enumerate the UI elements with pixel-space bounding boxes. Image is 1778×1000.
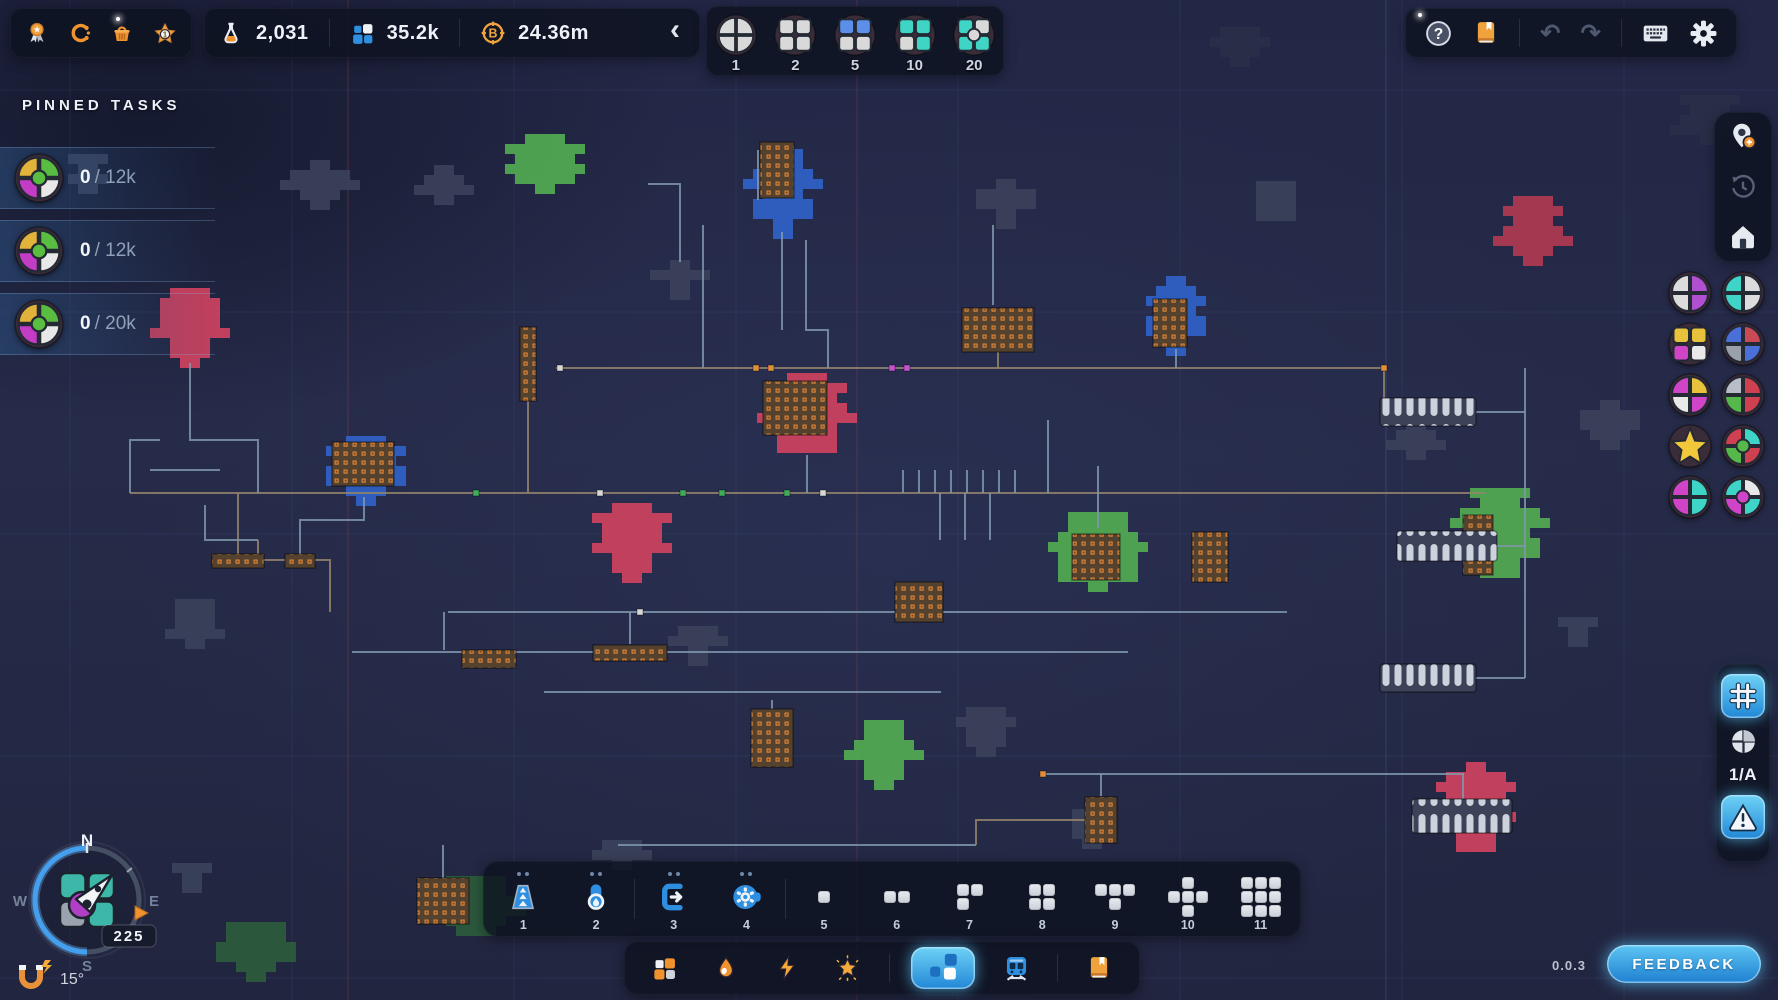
task-shape-icon [14, 299, 64, 349]
operator-shape-badge[interactable] [1668, 322, 1712, 366]
compass-tilt-value: 15° [60, 971, 84, 988]
toolbar-slot-7[interactable]: 7 [935, 867, 1004, 932]
task-progress: 0/ 12k [80, 240, 136, 262]
task-shape-icon [14, 226, 64, 276]
throughput-option-1[interactable]: 1 [710, 14, 762, 74]
add-waypoint-button[interactable] [1728, 122, 1758, 152]
toolbar-hotkey: 4 [743, 918, 750, 932]
shape-layout-icon [818, 879, 830, 915]
divider [1519, 19, 1520, 47]
shortcuts-button[interactable] [1642, 20, 1669, 47]
linked-shapes-button[interactable] [68, 21, 92, 45]
magnet-snap-icon[interactable] [19, 960, 52, 986]
toolbar-hotkey: 3 [670, 918, 677, 932]
pipe-icon [578, 879, 614, 915]
feedback-button[interactable]: FEEDBACK [1607, 945, 1761, 983]
toolbar-hotkey: 11 [1254, 918, 1267, 932]
main-menu-panel: ★ 1 [10, 8, 192, 58]
chain-icon [68, 20, 92, 46]
operator-shape-badge[interactable] [1721, 271, 1765, 315]
throughput-selector-panel: 1 2 5 [706, 6, 1004, 76]
toolbar-hotkey: 1 [520, 918, 527, 932]
question-icon: ? [1425, 20, 1452, 47]
research-flask-icon [218, 20, 244, 46]
pinned-task-row[interactable]: 0/ 12k [0, 220, 215, 282]
flame-icon [713, 955, 739, 981]
history-clock-icon [1729, 173, 1757, 201]
toolbar-hotkey: 9 [1112, 918, 1119, 932]
task-progress: 0/ 12k [80, 167, 136, 189]
task-progress: 0/ 20k [80, 313, 136, 335]
settings-button[interactable] [1690, 20, 1717, 47]
toolbar-slot-2[interactable]: 2 [562, 867, 631, 932]
achievements-button[interactable]: ★ [25, 21, 49, 45]
redo-button[interactable]: ↷ [1581, 19, 1601, 48]
coin-icon: B [480, 20, 506, 46]
grid-view-button[interactable] [1721, 674, 1765, 718]
shape-layout-icon [1095, 879, 1135, 915]
toolbar-hotkey: 2 [593, 918, 600, 932]
resources-panel: 2,031 35.2k B 24.36m ‹ [204, 8, 700, 58]
throughput-label: 5 [851, 57, 859, 74]
throughput-option-2[interactable]: 2 [769, 14, 821, 74]
compass[interactable]: N W E S 225 15° [8, 826, 183, 998]
category-tab-bar [624, 941, 1140, 995]
shape-badge-icon [715, 14, 757, 56]
pinned-task-row[interactable]: 0/ 12k [0, 147, 215, 209]
toolbar-hotkey: 6 [893, 918, 900, 932]
medal-icon: ★ [25, 20, 49, 46]
alerts-button[interactable] [1721, 795, 1765, 839]
help-button[interactable]: ? [1425, 20, 1452, 47]
shape-layout-icon [884, 879, 910, 915]
toolbar-hotkey: 10 [1181, 918, 1195, 932]
world-map[interactable] [0, 0, 1778, 1000]
toolbar-slot-4[interactable]: 4 [712, 867, 781, 932]
sparkle-dot [1418, 13, 1422, 17]
throughput-option-20[interactable]: 20 [948, 14, 1000, 74]
shape-layout-icon [957, 879, 983, 915]
compass-heading-value: 225 [113, 928, 144, 945]
history-button[interactable] [1729, 173, 1757, 201]
operator-shape-badge[interactable] [1668, 373, 1712, 417]
throughput-label: 2 [791, 57, 799, 74]
compass-west: W [13, 893, 28, 910]
toolbar-slot-3[interactable]: 3 [639, 867, 708, 932]
shape-badge-icon [894, 14, 936, 56]
operator-shape-badge[interactable] [1668, 424, 1712, 468]
divider [785, 879, 786, 919]
processor-icon [728, 879, 764, 915]
lightning-icon [774, 955, 800, 981]
divider [889, 954, 890, 982]
operator-shape-badge[interactable] [1721, 373, 1765, 417]
keyboard-icon [1642, 20, 1669, 47]
shape-layout-icon [1029, 879, 1055, 915]
version-label: 0.0.3 [1537, 958, 1601, 973]
divider [1057, 954, 1058, 982]
toolbar-slot-5[interactable]: 5 [789, 867, 858, 932]
shape-badge-icon [774, 14, 816, 56]
sparkle-star-icon [834, 955, 861, 982]
toolbar-slot-11[interactable]: 11 [1226, 867, 1295, 932]
task-shape-icon [14, 153, 64, 203]
game-screen: { "app": {"version": "0.0.3", "feedback_… [0, 0, 1778, 1000]
svg-text:B: B [489, 27, 498, 41]
home-icon [1728, 222, 1758, 252]
collapse-chevron-icon[interactable]: ‹ [670, 20, 686, 46]
shapes-tab-icon [651, 955, 678, 982]
toolbar-slot-8[interactable]: 8 [1008, 867, 1077, 932]
operator-shape-badge[interactable] [1721, 322, 1765, 366]
knowledge-book-button[interactable] [1473, 20, 1499, 46]
throughput-label: 1 [732, 57, 740, 74]
shape-layout-icon [1168, 879, 1208, 915]
tab-energy[interactable] [767, 948, 807, 988]
operator-shape-badge[interactable] [1668, 475, 1712, 519]
tab-fluids[interactable] [706, 948, 746, 988]
machine-clusters [212, 142, 1512, 924]
tab-blueprints-selected[interactable] [911, 947, 975, 989]
system-menu-panel: ? ↶ ↷ [1405, 8, 1737, 58]
shape-badge-icon [834, 14, 876, 56]
divider [459, 19, 460, 47]
toolbar-slot-9[interactable]: 9 [1081, 867, 1150, 932]
tab-goals[interactable] [828, 948, 868, 988]
warning-icon [1728, 802, 1758, 832]
undo-button[interactable]: ↶ [1540, 19, 1560, 48]
shape-view-button[interactable] [1730, 728, 1757, 755]
conveyor-lines [130, 150, 1525, 878]
level-number: 1 [162, 29, 167, 39]
toolbar-hotkey: 5 [820, 918, 827, 932]
divider [634, 879, 635, 919]
shapes-currency-value: 35.2k [387, 22, 440, 45]
tab-trains[interactable] [996, 948, 1036, 988]
pinned-task-row[interactable]: 0/ 20k [0, 293, 215, 355]
divider [1621, 19, 1622, 47]
svg-text:?: ? [1434, 26, 1444, 43]
tab-wiki[interactable] [1079, 948, 1119, 988]
waypoint-pin-icon [1728, 122, 1758, 152]
book-icon [1473, 20, 1499, 46]
view-controls-pill: 1/A [1716, 664, 1770, 862]
map-tools-pill [1714, 112, 1772, 262]
shape-layout-icon [1241, 879, 1281, 915]
tab-shapes[interactable] [645, 948, 685, 988]
toolbar-slot-10[interactable]: 10 [1153, 867, 1222, 932]
operator-shape-badge[interactable] [1721, 475, 1765, 519]
sparkle-dot [116, 17, 120, 21]
operator-shape-badge[interactable] [1668, 271, 1712, 315]
coins-value: 24.36m [518, 22, 589, 45]
level-button[interactable]: 1 [153, 21, 177, 45]
gear-icon [1690, 20, 1717, 47]
throughput-label: 20 [966, 57, 983, 74]
pinned-tasks-title: PINNED TASKS [22, 97, 181, 114]
throughput-option-10[interactable]: 10 [889, 14, 941, 74]
toolbar-slot-6[interactable]: 6 [862, 867, 931, 932]
compass-north: N [81, 831, 93, 850]
conveyor-nodes [473, 365, 1387, 777]
throughput-label: 10 [906, 57, 923, 74]
divider [329, 19, 330, 47]
extractor-icon [656, 879, 692, 915]
belt-icon [505, 879, 541, 915]
book-icon [1086, 955, 1112, 981]
star-level-icon: 1 [153, 20, 177, 47]
blueprint-icon [921, 952, 965, 985]
throughput-option-5[interactable]: 5 [829, 14, 881, 74]
operator-shape-badge[interactable] [1721, 424, 1765, 468]
shape-badge-icon [953, 14, 995, 56]
research-points-value: 2,031 [256, 22, 309, 45]
home-button[interactable] [1728, 222, 1758, 252]
compass-east: E [149, 893, 159, 910]
toolbar-hotkey: 7 [966, 918, 973, 932]
shop-button[interactable] [110, 21, 134, 45]
train-icon [1003, 955, 1030, 982]
svg-text:★: ★ [33, 25, 41, 35]
basket-icon [110, 20, 134, 46]
quartered-circle-icon [1730, 728, 1757, 755]
zone-label: 1/A [1729, 765, 1757, 785]
shapes-currency-icon [350, 21, 375, 46]
toolbar-hotkey: 8 [1039, 918, 1046, 932]
toolbar-slot-1[interactable]: 1 [489, 867, 558, 932]
building-toolbar: 1234567891011 [483, 861, 1301, 937]
grid-icon [1728, 681, 1758, 711]
resource-patches [68, 27, 1750, 982]
